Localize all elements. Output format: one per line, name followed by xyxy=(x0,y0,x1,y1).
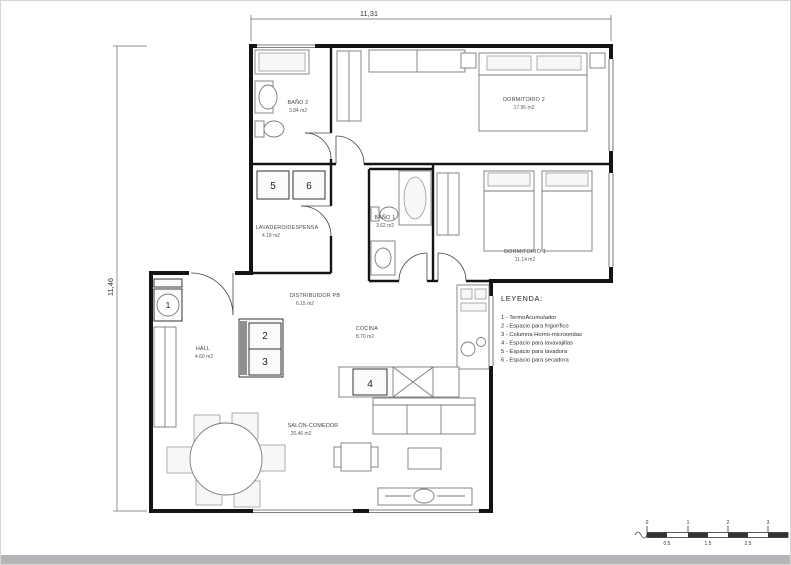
svg-text:8.70 m2: 8.70 m2 xyxy=(356,334,374,340)
label-lavadero: LAVADERO/DESPENSA xyxy=(256,225,319,231)
label-hall: HALL xyxy=(196,346,210,352)
sink-bowl xyxy=(461,342,475,356)
living-furniture xyxy=(167,398,475,507)
tv-circle xyxy=(414,489,434,503)
nightstand xyxy=(461,53,476,68)
top-dimension: 11,31 xyxy=(251,9,611,41)
marker-1: 1 xyxy=(166,300,171,310)
toilet-tank xyxy=(255,121,264,137)
svg-text:4.18 m2: 4.18 m2 xyxy=(262,233,280,239)
dining-chair xyxy=(167,447,193,473)
armchair xyxy=(341,443,371,471)
bedroom2-furniture xyxy=(337,50,605,131)
pillow xyxy=(537,56,581,70)
left-dimension: 11,46 xyxy=(106,46,147,511)
marker-6: 6 xyxy=(306,181,312,192)
top-dimension-label: 11,31 xyxy=(360,9,378,18)
toilet-bowl xyxy=(264,121,284,137)
pillow xyxy=(487,56,531,70)
floorplan-drawing: 11,31 11,46 xyxy=(1,1,791,557)
left-dimension-label: 11,46 xyxy=(106,278,115,296)
scale-tick: 2.5 xyxy=(745,541,752,547)
svg-text:3.84 m2: 3.84 m2 xyxy=(289,108,307,114)
coffee-table xyxy=(408,448,441,469)
legend-title: LEYENDA: xyxy=(501,294,543,303)
marker-2: 2 xyxy=(262,331,268,342)
legend-item: 1 - TermoAcumulador xyxy=(501,315,556,321)
legend-item: 5 - Espacio para lavadora xyxy=(501,349,568,355)
label-distribuidor: DISTRIBUIDOR PB xyxy=(290,293,341,299)
svg-text:20.46 m2: 20.46 m2 xyxy=(291,431,312,437)
dining-table xyxy=(190,423,262,495)
sink-bowl-small xyxy=(477,338,486,347)
svg-text:11.14 m2: 11.14 m2 xyxy=(515,257,536,263)
scale-bar: 0 1 2 3 0.5 1.5 2.5 xyxy=(635,520,788,547)
nightstand xyxy=(590,53,605,68)
marker-4: 4 xyxy=(367,379,373,390)
bathroom2-fixtures xyxy=(255,50,309,137)
sink-basin xyxy=(259,85,277,109)
svg-text:6.15 m2: 6.15 m2 xyxy=(296,301,314,307)
label-salon: SALÓN-COMEDOR xyxy=(288,422,339,429)
scale-tick: 0 xyxy=(646,520,649,526)
label-bano2: BAÑO 2 xyxy=(288,99,309,106)
marker-3: 3 xyxy=(262,357,268,368)
appliance-column: 2 3 xyxy=(239,319,283,377)
scale-tick: 1 xyxy=(687,520,690,526)
legend-item: 2 - Espacio para frigorífico xyxy=(501,324,569,330)
legend-item: 4 - Espacio para lavavajillas xyxy=(501,341,573,347)
legend: LEYENDA: 1 - TermoAcumulador 2 - Espacio… xyxy=(501,294,582,364)
svg-text:4.60 m2: 4.60 m2 xyxy=(195,354,213,360)
floorplan-page: 11,31 11,46 xyxy=(0,0,791,565)
pillow xyxy=(546,173,588,186)
label-bano1: BAÑO 1 xyxy=(375,214,396,221)
pillow xyxy=(488,173,530,186)
label-dormitorio1: DORMITORIO 1 xyxy=(504,249,546,255)
bedroom1-furniture xyxy=(437,171,592,251)
legend-item: 6 - Espacio para secadora xyxy=(501,358,569,364)
dining-chair xyxy=(259,445,285,471)
svg-text:17.96 m2: 17.96 m2 xyxy=(514,105,535,111)
label-cocina: COCINA xyxy=(356,326,378,332)
scale-tick: 0.5 xyxy=(664,541,671,547)
label-dormitorio2: DORMITORIO 2 xyxy=(503,97,545,103)
sofa xyxy=(373,398,475,434)
svg-text:3.62 m2: 3.62 m2 xyxy=(376,223,394,229)
scale-tick: 3 xyxy=(767,520,770,526)
scale-tick: 2 xyxy=(727,520,730,526)
legend-item: 3 - Columna Horno-microondas xyxy=(501,332,582,338)
page-bottom-strip xyxy=(1,555,790,564)
sink-basin xyxy=(375,248,391,268)
laundry-fixtures: 5 6 xyxy=(257,171,325,199)
hall-fixtures: 1 xyxy=(154,279,182,427)
scale-tick: 1.5 xyxy=(705,541,712,547)
kitchen-fixtures: 4 xyxy=(339,285,489,397)
marker-5: 5 xyxy=(270,181,276,192)
